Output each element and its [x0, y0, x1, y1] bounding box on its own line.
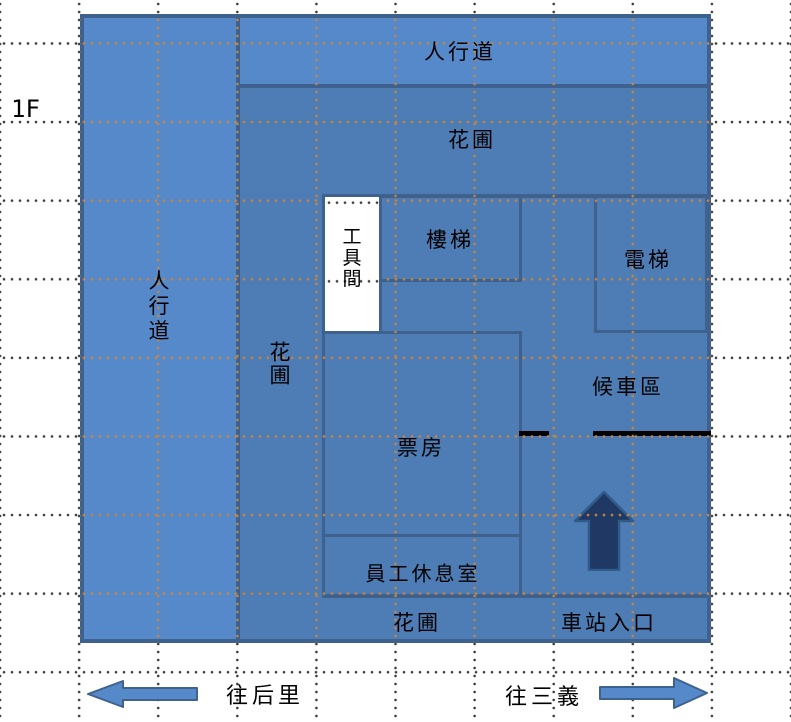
waiting-area-label: 候車區 — [592, 371, 664, 401]
floor-label: 1F — [11, 95, 40, 123]
gate-line-long — [593, 431, 711, 436]
direction-left-label: 往后里 — [226, 678, 304, 710]
up-arrow-icon — [574, 491, 634, 571]
direction-right-label: 往三義 — [505, 679, 583, 711]
tool-room-label: 工具間 — [338, 227, 365, 290]
gate-line-short — [519, 431, 549, 436]
sidewalk-top-label: 人行道 — [424, 36, 496, 66]
station-entrance-label: 車站入口 — [561, 607, 657, 637]
station-floor-plan-canvas: 1F 人行道 人行道 花圃 花圃 花圃 工具間 樓梯 電梯 候車區 票房 員工休… — [0, 0, 791, 722]
right-arrow-icon — [599, 677, 709, 709]
stairs-label: 樓梯 — [426, 224, 474, 254]
garden-bottom-label: 花圃 — [393, 607, 441, 637]
sidewalk-left-label: 人行道 — [143, 270, 173, 345]
ticket-office-label: 票房 — [397, 432, 445, 462]
elevator-label: 電梯 — [624, 244, 672, 274]
garden-top-label: 花圃 — [448, 124, 496, 154]
garden-left-label: 花圃 — [264, 341, 294, 387]
staff-lounge-label: 員工休息室 — [366, 558, 481, 587]
left-arrow-icon — [87, 680, 198, 708]
